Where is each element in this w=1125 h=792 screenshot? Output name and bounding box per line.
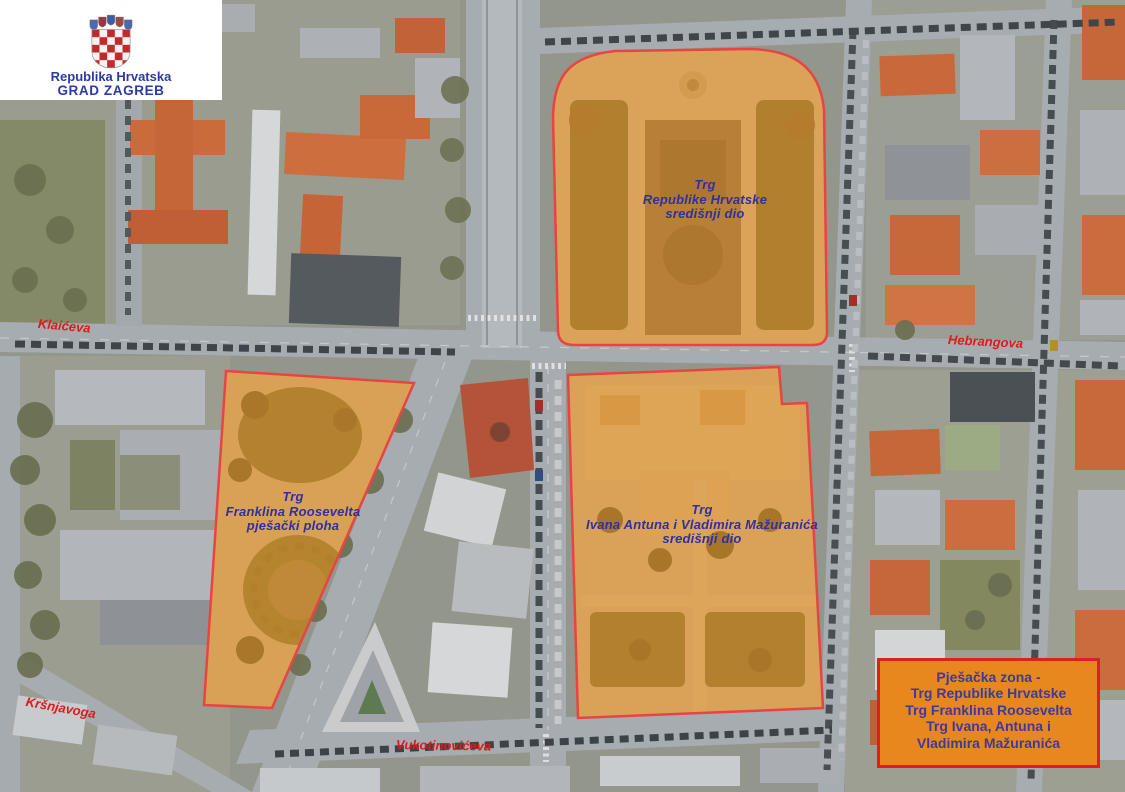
- header-country: Republika Hrvatska: [0, 70, 222, 84]
- legend-box: Pješačka zona - Trg Republike Hrvatske T…: [877, 658, 1100, 768]
- legend-line: Vladimira Mažuranića: [880, 735, 1097, 751]
- legend-line: Trg Franklina Roosevelta: [880, 702, 1097, 718]
- legend-line: Pješačka zona -: [880, 669, 1097, 685]
- croatian-coat-of-arms-icon: [88, 14, 134, 68]
- header-city: GRAD ZAGREB: [0, 84, 222, 98]
- legend-line: Trg Ivana, Antuna i: [880, 718, 1097, 734]
- legend-line: Trg Republike Hrvatske: [880, 685, 1097, 701]
- header-box: Republika Hrvatska GRAD ZAGREB: [0, 0, 222, 100]
- map-page: Trg Republike Hrvatske središnji dio Trg…: [0, 0, 1125, 792]
- zone-shape-trg-republike-hrvatske: [553, 49, 827, 345]
- zone-shape-trg-mazuranica: [568, 367, 823, 718]
- checkerboard-shield: [92, 30, 130, 69]
- crown-shields: [90, 15, 132, 30]
